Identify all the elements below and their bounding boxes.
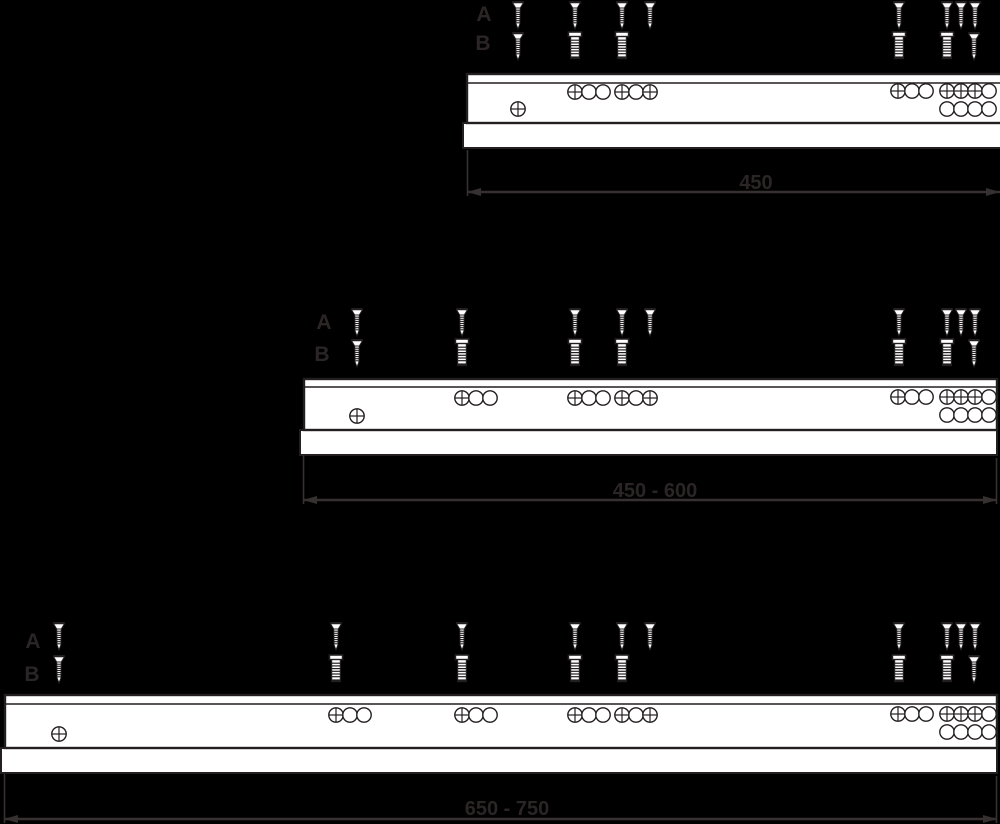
screw-head: [956, 3, 967, 8]
screw-head: [970, 3, 981, 8]
screw-bottom: [571, 679, 580, 681]
countersunk-screw-icon: [351, 308, 363, 336]
screw-head-top: [955, 622, 967, 624]
mounting-hole: [469, 708, 483, 722]
screw-bottom: [895, 679, 904, 681]
screw-head-top: [644, 308, 656, 310]
countersunk-screw-icon: [330, 622, 342, 650]
rail-lower-profile: [1, 748, 997, 773]
countersunk-screw-icon: [968, 339, 980, 367]
pan-head-screw-icon: [892, 339, 905, 366]
mounting-hole: [940, 102, 954, 116]
countersunk-screw-icon: [616, 308, 628, 336]
screw-bottom: [458, 363, 467, 365]
screw-head: [894, 310, 905, 315]
screw-bottom: [943, 679, 952, 681]
mounting-hole: [919, 707, 933, 721]
screw-head: [645, 310, 656, 315]
screw-head: [617, 3, 628, 8]
countersunk-screw-icon: [969, 308, 981, 336]
countersunk-screw-icon: [955, 622, 967, 650]
screw-head-top: [569, 1, 581, 3]
screw-bottom: [571, 363, 580, 365]
screw-head: [457, 624, 468, 629]
mounting-hole: [629, 708, 643, 722]
countersunk-screw-icon: [644, 308, 656, 336]
screw-head: [455, 339, 468, 344]
dimension-arrow-left: [303, 496, 317, 504]
drawer-slide-mounting-diagram: AB450AB450 - 600AB650 - 750: [0, 0, 1000, 824]
rail-upper-profile: [5, 695, 997, 748]
mounting-hole: [582, 391, 596, 405]
countersunk-screw-icon: [569, 622, 581, 650]
screw-head-top: [969, 622, 981, 624]
screw-head-top: [330, 622, 342, 624]
screw-head: [54, 657, 65, 662]
row-a-label: A: [476, 3, 491, 26]
screw-head: [892, 32, 905, 37]
screw-head-top: [351, 339, 363, 341]
mounting-hole: [343, 708, 357, 722]
mounting-hole: [968, 408, 982, 422]
screw-head: [617, 310, 628, 315]
rail-upper-profile: [467, 74, 1000, 123]
mounting-hole: [582, 85, 596, 99]
pan-head-screw-icon: [615, 339, 628, 366]
dimension-label: 450: [739, 172, 772, 194]
countersunk-screw-icon: [456, 622, 468, 650]
countersunk-screw-icon: [351, 339, 363, 367]
screw-head: [615, 339, 628, 344]
mounting-hole: [982, 725, 996, 739]
mounting-hole: [629, 391, 643, 405]
mounting-hole: [982, 84, 996, 98]
countersunk-screw-icon: [941, 1, 953, 29]
countersunk-screw-icon: [969, 622, 981, 650]
screw-head: [617, 624, 628, 629]
screw-head: [942, 3, 953, 8]
countersunk-screw-icon: [893, 622, 905, 650]
screw-head: [331, 624, 342, 629]
screw-head-top: [969, 1, 981, 3]
screw-head: [894, 3, 905, 8]
screw-head: [455, 655, 468, 660]
screw-head-top: [569, 622, 581, 624]
mounting-hole: [629, 85, 643, 99]
pan-head-screw-icon: [615, 32, 628, 59]
countersunk-screw-icon: [968, 32, 980, 60]
countersunk-screw-icon: [941, 308, 953, 336]
row-a-label: A: [25, 630, 40, 653]
row-a-label: A: [316, 311, 331, 334]
row-b-label: B: [475, 32, 490, 55]
screw-head-top: [955, 1, 967, 3]
screw-bottom: [943, 56, 952, 58]
screw-head-top: [644, 1, 656, 3]
screw-head: [892, 339, 905, 344]
screw-head: [970, 310, 981, 315]
screw-head-top: [512, 32, 524, 34]
screw-head: [942, 624, 953, 629]
screw-head: [645, 3, 656, 8]
screw-head: [615, 655, 628, 660]
screw-head: [892, 655, 905, 660]
pan-head-screw-icon: [455, 339, 468, 366]
screw-head: [956, 624, 967, 629]
pan-head-screw-icon: [455, 655, 468, 682]
pan-head-screw-icon: [615, 655, 628, 682]
mounting-hole: [596, 391, 610, 405]
countersunk-screw-icon: [512, 1, 524, 29]
screw-head-top: [351, 308, 363, 310]
screw-head: [568, 32, 581, 37]
mounting-hole: [968, 102, 982, 116]
screw-head-top: [941, 308, 953, 310]
screw-head: [352, 341, 363, 346]
screw-head-top: [941, 622, 953, 624]
mounting-hole: [954, 102, 968, 116]
mounting-hole: [483, 708, 497, 722]
screw-head-top: [53, 655, 65, 657]
mounting-hole: [919, 390, 933, 404]
dimension-arrow-left: [467, 188, 481, 196]
screw-head: [568, 339, 581, 344]
pan-head-screw-icon: [940, 655, 953, 682]
screw-head: [970, 624, 981, 629]
countersunk-screw-icon: [941, 622, 953, 650]
countersunk-screw-icon: [969, 1, 981, 29]
rail-assembly-450-600: AB450 - 600: [300, 308, 997, 504]
dimension-arrow-right: [983, 815, 997, 823]
pan-head-screw-icon: [940, 32, 953, 59]
screw-head-top: [893, 308, 905, 310]
row-b-label: B: [24, 663, 39, 686]
diagram-page: AB450AB450 - 600AB650 - 750: [0, 0, 1000, 824]
screw-head-top: [456, 308, 468, 310]
screw-head: [570, 3, 581, 8]
screw-head: [352, 310, 363, 315]
screw-bottom: [895, 56, 904, 58]
screw-head: [956, 310, 967, 315]
mounting-hole: [596, 85, 610, 99]
dimension-label: 450 - 600: [613, 480, 698, 502]
screw-head-top: [968, 655, 980, 657]
screw-head: [940, 339, 953, 344]
screw-head: [615, 32, 628, 37]
screw-head: [513, 3, 524, 8]
rail-assembly-650-750: AB650 - 750: [1, 622, 997, 823]
screw-head-top: [968, 339, 980, 341]
screw-bottom: [458, 679, 467, 681]
countersunk-screw-icon: [955, 1, 967, 29]
screw-head: [570, 624, 581, 629]
screw-head: [969, 34, 980, 39]
dimension-arrow-right: [986, 188, 1000, 196]
screw-head-top: [893, 1, 905, 3]
screw-head-top: [456, 622, 468, 624]
countersunk-screw-icon: [616, 1, 628, 29]
screw-head-top: [969, 308, 981, 310]
screw-head: [894, 624, 905, 629]
mounting-hole: [982, 102, 996, 116]
screw-bottom: [618, 679, 627, 681]
countersunk-screw-icon: [53, 655, 65, 683]
mounting-hole: [357, 708, 371, 722]
countersunk-screw-icon: [53, 622, 65, 650]
screw-head: [570, 310, 581, 315]
mounting-hole: [905, 390, 919, 404]
screw-head: [940, 655, 953, 660]
mounting-hole: [469, 391, 483, 405]
screw-head: [969, 657, 980, 662]
screw-head-top: [955, 308, 967, 310]
rail-lower-profile: [463, 123, 1000, 148]
pan-head-screw-icon: [329, 655, 342, 682]
screw-head-top: [569, 308, 581, 310]
countersunk-screw-icon: [893, 1, 905, 29]
screw-head: [942, 310, 953, 315]
screw-bottom: [895, 363, 904, 365]
screw-head: [54, 624, 65, 629]
mounting-hole: [982, 408, 996, 422]
mounting-hole: [940, 408, 954, 422]
screw-head-top: [968, 32, 980, 34]
mounting-hole: [954, 408, 968, 422]
pan-head-screw-icon: [892, 32, 905, 59]
mounting-hole: [596, 708, 610, 722]
dimension-label: 650 - 750: [465, 798, 550, 820]
screw-head: [645, 624, 656, 629]
pan-head-screw-icon: [568, 32, 581, 59]
rail-assembly-450: AB450: [463, 1, 1000, 196]
pan-head-screw-icon: [568, 655, 581, 682]
screw-head-top: [616, 308, 628, 310]
countersunk-screw-icon: [968, 655, 980, 683]
mounting-hole: [582, 708, 596, 722]
countersunk-screw-icon: [512, 32, 524, 60]
screw-head-top: [893, 622, 905, 624]
mounting-hole: [905, 84, 919, 98]
rail-lower-profile: [300, 430, 997, 455]
screw-head-top: [53, 622, 65, 624]
screw-head-top: [616, 622, 628, 624]
pan-head-screw-icon: [568, 339, 581, 366]
row-b-label: B: [314, 343, 329, 366]
screw-head: [329, 655, 342, 660]
screw-head: [969, 341, 980, 346]
screw-head-top: [512, 1, 524, 3]
mounting-hole: [968, 725, 982, 739]
countersunk-screw-icon: [616, 622, 628, 650]
countersunk-screw-icon: [456, 308, 468, 336]
countersunk-screw-icon: [893, 308, 905, 336]
mounting-hole: [483, 391, 497, 405]
pan-head-screw-icon: [940, 339, 953, 366]
screw-bottom: [943, 363, 952, 365]
screw-head-top: [644, 622, 656, 624]
screw-bottom: [618, 56, 627, 58]
screw-bottom: [571, 56, 580, 58]
mounting-hole: [905, 707, 919, 721]
countersunk-screw-icon: [569, 1, 581, 29]
screw-bottom: [332, 679, 341, 681]
screw-head-top: [941, 1, 953, 3]
screw-bottom: [618, 363, 627, 365]
mounting-hole: [982, 707, 996, 721]
dimension-arrow-right: [983, 496, 997, 504]
countersunk-screw-icon: [955, 308, 967, 336]
screw-head-top: [616, 1, 628, 3]
mounting-hole: [954, 725, 968, 739]
screw-head: [940, 32, 953, 37]
screw-head: [568, 655, 581, 660]
screw-head: [457, 310, 468, 315]
countersunk-screw-icon: [644, 1, 656, 29]
screw-head: [513, 34, 524, 39]
mounting-hole: [940, 725, 954, 739]
countersunk-screw-icon: [644, 622, 656, 650]
mounting-hole: [919, 84, 933, 98]
mounting-hole: [982, 390, 996, 404]
pan-head-screw-icon: [892, 655, 905, 682]
countersunk-screw-icon: [569, 308, 581, 336]
dimension-arrow-left: [4, 815, 18, 823]
